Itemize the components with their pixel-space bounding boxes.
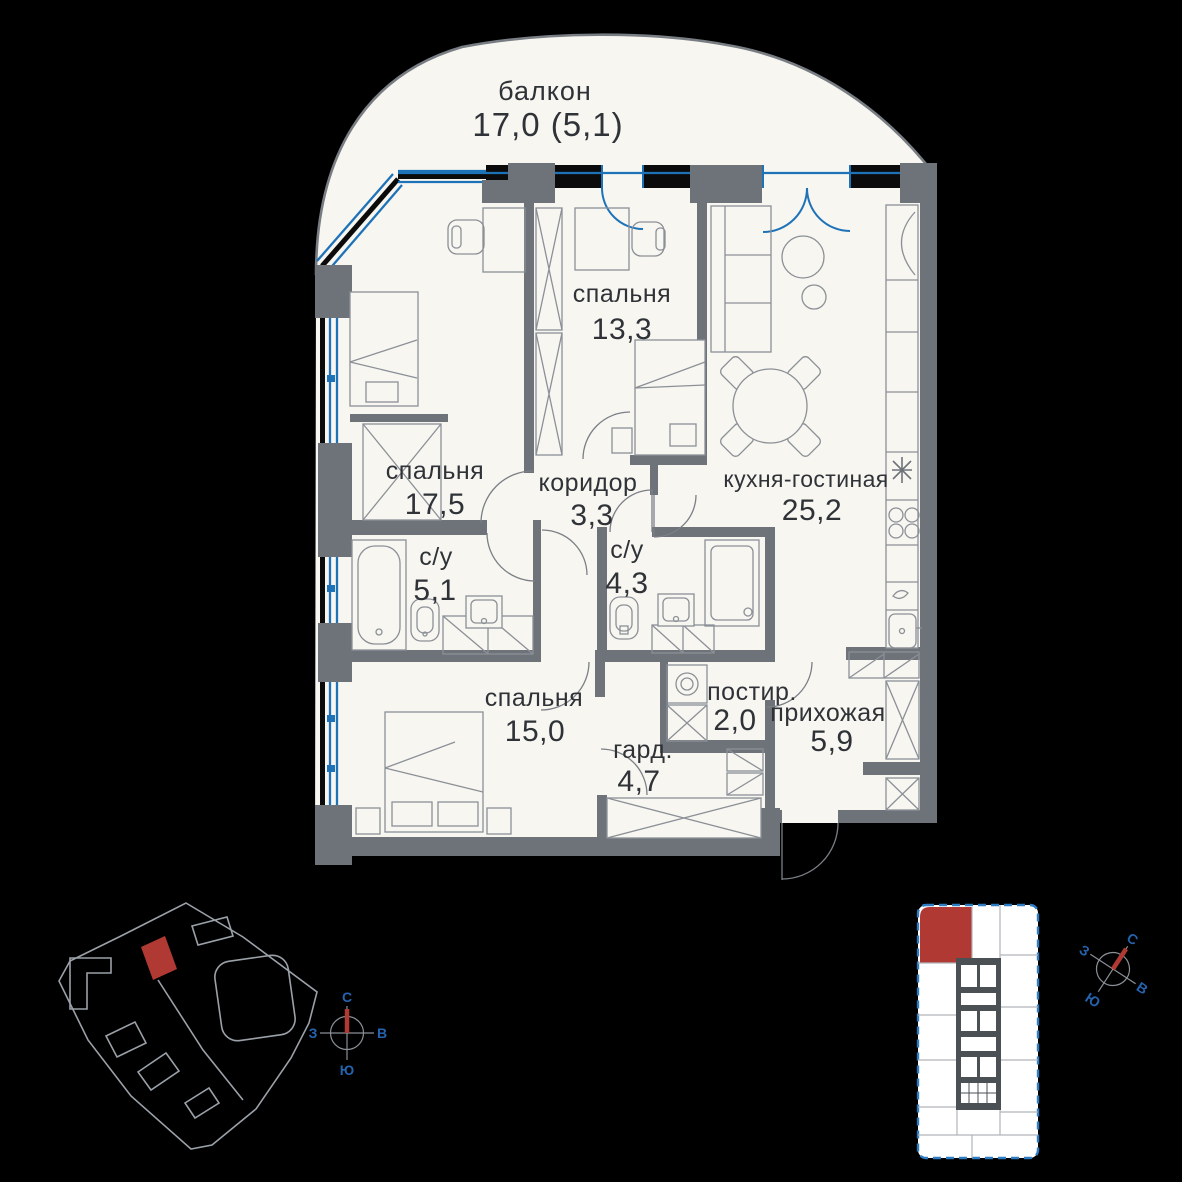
dresser-icon — [350, 414, 448, 422]
room-area-bath-4: 4,3 — [605, 567, 648, 600]
room-label-bath-4: с/у — [610, 536, 643, 564]
room-label-bedroom-17: спальня — [386, 457, 484, 485]
room-label-bath-5: с/у — [419, 543, 452, 571]
sink-icon-bath-5 — [466, 596, 502, 628]
room-area-bedroom-15: 15,0 — [505, 715, 565, 748]
screenshot: балкон 17,0 (5,1) спальня 13,3 спальня 1… — [0, 0, 1182, 1182]
room-area-bath-5: 5,1 — [413, 574, 456, 607]
room-label-kitchen: кухня-гостиная — [723, 466, 888, 492]
compass-north-label: С — [342, 989, 352, 1005]
key-plan — [918, 905, 1038, 1158]
room-area-laundry: 2,0 — [713, 704, 756, 737]
room-label-gard: гард. — [613, 736, 673, 764]
room-label-corridor: коридор — [539, 469, 638, 497]
key-plan-highlighted-unit — [920, 907, 972, 963]
compass-east-label: В — [377, 1025, 387, 1041]
room-area-gard: 4,7 — [617, 765, 660, 798]
room-label-bedroom-13: спальня — [573, 280, 671, 308]
toilet-icon-bath-4 — [610, 597, 638, 639]
room-area-kitchen: 25,2 — [782, 494, 842, 527]
compass-west-label: З — [309, 1025, 318, 1041]
room-area-bedroom-13: 13,3 — [592, 313, 652, 346]
room-area-hallway: 5,9 — [810, 725, 853, 758]
bed-icon-bedroom-17 — [350, 292, 418, 406]
key-plan-core — [956, 958, 1001, 1110]
compass-south-label: Ю — [340, 1062, 354, 1078]
room-area-corridor: 3,3 — [570, 499, 613, 532]
kitchen-counter — [886, 205, 922, 648]
room-label-bedroom-15: спальня — [485, 684, 583, 712]
balcony-label: балкон — [498, 76, 592, 106]
sink-icon-bath-4 — [658, 594, 694, 626]
room-label-hallway: прихожая — [770, 699, 885, 727]
room-area-bedroom-17: 17,5 — [405, 488, 465, 521]
balcony-area: 17,0 (5,1) — [472, 106, 623, 143]
floor-plan-svg: балкон 17,0 (5,1) спальня 13,3 спальня 1… — [0, 0, 1182, 1182]
